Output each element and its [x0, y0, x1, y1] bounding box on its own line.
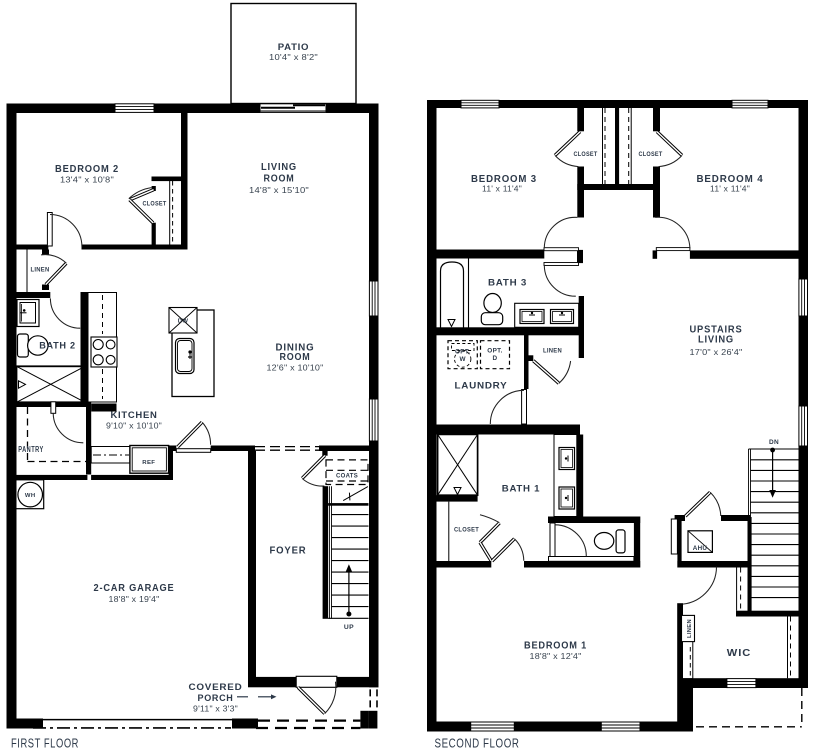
svg-text:WIC: WIC — [727, 648, 752, 659]
svg-text:13'4" x 10'8": 13'4" x 10'8" — [60, 175, 114, 185]
svg-text:CLOSET: CLOSET — [454, 527, 479, 534]
svg-text:BATH 2: BATH 2 — [39, 341, 76, 351]
svg-text:10'4" x 8'2": 10'4" x 8'2" — [269, 52, 318, 62]
svg-text:DN: DN — [769, 439, 779, 446]
svg-text:BATH 1: BATH 1 — [502, 484, 541, 494]
svg-text:COATS: COATS — [336, 473, 358, 480]
svg-text:CLOSET: CLOSET — [574, 151, 598, 158]
svg-text:12'6" x 10'10": 12'6" x 10'10" — [267, 363, 324, 373]
svg-text:CLOSET: CLOSET — [639, 151, 663, 158]
svg-text:FIRST FLOOR: FIRST FLOOR — [11, 736, 79, 750]
svg-text:OPT.: OPT. — [487, 348, 502, 355]
svg-text:KITCHEN: KITCHEN — [111, 410, 158, 420]
svg-text:UP: UP — [344, 624, 354, 631]
svg-text:17'0" x 26'4": 17'0" x 26'4" — [690, 347, 743, 357]
svg-text:18'8" x 19'4": 18'8" x 19'4" — [109, 594, 160, 604]
svg-text:BEDROOM 2: BEDROOM 2 — [55, 164, 119, 175]
svg-text:DW: DW — [178, 319, 189, 325]
svg-text:9'10" x 10'10": 9'10" x 10'10" — [106, 421, 162, 431]
svg-text:W: W — [460, 356, 467, 363]
svg-text:14'8" x 15'10": 14'8" x 15'10" — [249, 185, 309, 195]
svg-text:9'11" x 3'3": 9'11" x 3'3" — [193, 704, 238, 714]
svg-text:LIVING: LIVING — [698, 335, 734, 346]
svg-text:LINEN: LINEN — [687, 619, 693, 638]
svg-text:WH: WH — [25, 493, 36, 499]
svg-text:CLOSET: CLOSET — [143, 201, 167, 208]
svg-text:LINEN: LINEN — [543, 348, 562, 355]
svg-text:LIVING: LIVING — [261, 162, 297, 173]
svg-text:D: D — [493, 355, 498, 362]
svg-text:COVERED: COVERED — [189, 682, 243, 692]
svg-text:REF: REF — [142, 460, 155, 466]
svg-text:11' x 11'4": 11' x 11'4" — [710, 184, 750, 194]
svg-text:LINEN: LINEN — [31, 267, 50, 274]
svg-text:LAUNDRY: LAUNDRY — [455, 381, 508, 391]
svg-text:PATIO: PATIO — [278, 42, 310, 52]
svg-text:PORCH: PORCH — [198, 693, 234, 703]
svg-text:FOYER: FOYER — [270, 546, 307, 557]
svg-text:SECOND FLOOR: SECOND FLOOR — [435, 736, 520, 750]
svg-text:ROOM: ROOM — [264, 174, 295, 185]
svg-text:BEDROOM 1: BEDROOM 1 — [524, 641, 587, 652]
svg-text:OPT.: OPT. — [455, 349, 470, 356]
svg-text:PANTRY: PANTRY — [18, 445, 44, 454]
svg-text:11' x 11'4": 11' x 11'4" — [482, 184, 522, 194]
svg-text:AHU: AHU — [693, 545, 708, 552]
svg-text:BATH 3: BATH 3 — [488, 278, 527, 288]
svg-text:2-CAR GARAGE: 2-CAR GARAGE — [94, 583, 175, 594]
svg-text:18'8" x 12'4": 18'8" x 12'4" — [530, 651, 582, 661]
svg-text:ROOM: ROOM — [280, 352, 311, 363]
